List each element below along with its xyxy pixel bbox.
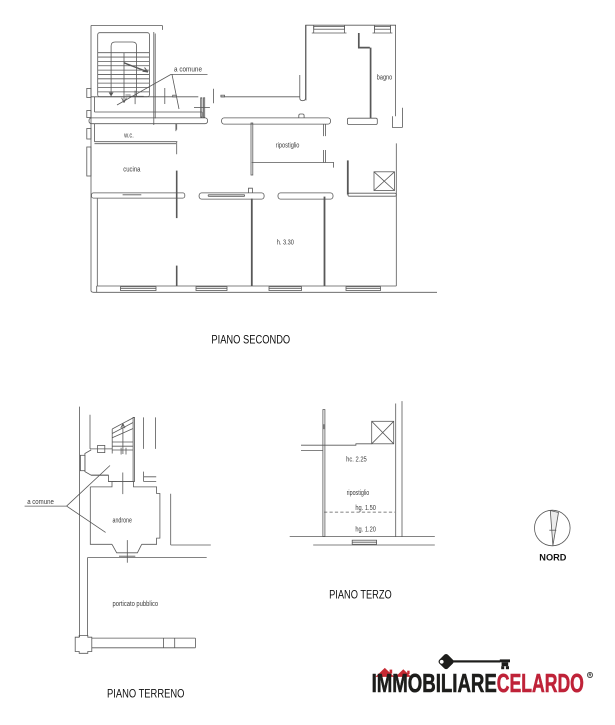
svg-text:w.c.: w.c. (123, 132, 134, 139)
svg-text:cucina: cucina (123, 167, 140, 174)
svg-text:R: R (589, 673, 592, 678)
svg-text:a comune: a comune (27, 499, 54, 506)
svg-text:PIANO TERRENO: PIANO TERRENO (107, 687, 184, 700)
svg-text:ripostiglio: ripostiglio (276, 142, 300, 149)
svg-text:porticato pubblico: porticato pubblico (113, 601, 159, 608)
svg-text:a comune: a comune (174, 67, 202, 74)
svg-text:hc. 2.25: hc. 2.25 (346, 456, 367, 463)
svg-text:IMMOBILIARE: IMMOBILIARE (372, 670, 497, 698)
svg-text:NORD: NORD (539, 553, 566, 563)
svg-text:androne: androne (113, 517, 132, 524)
svg-text:CELARDO: CELARDO (497, 670, 584, 698)
svg-text:PIANO SECONDO: PIANO SECONDO (211, 333, 290, 346)
svg-text:ripostiglio: ripostiglio (347, 490, 370, 497)
svg-text:PIANO TERZO: PIANO TERZO (329, 589, 392, 602)
svg-text:hg. 1.20: hg. 1.20 (355, 527, 376, 534)
svg-text:h. 3.30: h. 3.30 (277, 239, 294, 246)
svg-text:hg. 1.50: hg. 1.50 (355, 505, 376, 512)
svg-text:bagno: bagno (377, 75, 392, 82)
